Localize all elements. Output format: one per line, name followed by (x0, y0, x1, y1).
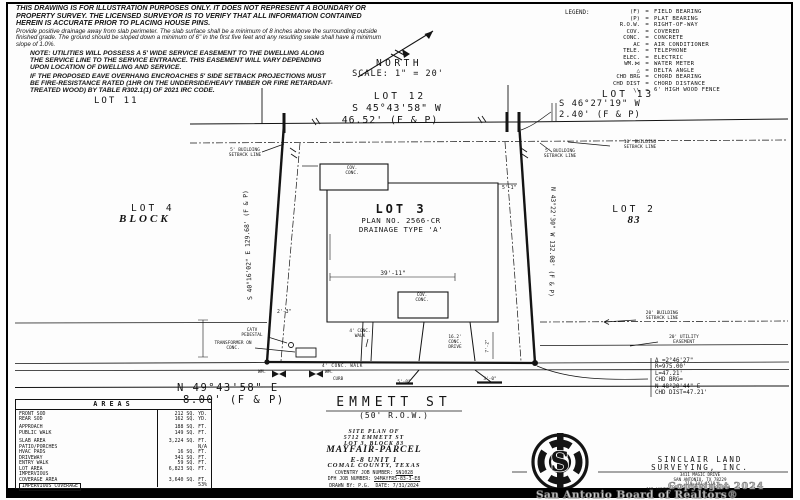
row-value: 149 SQ. FT. (175, 431, 207, 437)
transformer-label: TRANSFORMER ON CONC. (212, 342, 254, 352)
coventry-job-line: COVENTRY JOB NUMBER: SN1028 (335, 471, 413, 476)
date-value: 7/31/2024 (393, 484, 419, 489)
dim-5-0: 5'-0" (397, 381, 410, 386)
setback-right5-label: 5' BUILDING SETBACK LINE (542, 149, 578, 159)
row-label: REAR SOD (19, 417, 43, 423)
date-label: DATE: (375, 484, 389, 489)
dfh-job-line: DFH JOB NUMBER: 94MAYFR5-83-3-E8 (328, 477, 420, 482)
disclaimer-drainage: Provide positive drainage away from slab… (16, 29, 390, 49)
drawn-by-line: DRAWN BY: P.G. DATE: 7/31/2024 (329, 484, 419, 489)
dim-2-3: 2'-3" (277, 310, 291, 315)
dfh-job-label: DFH JOB NUMBER: (328, 477, 371, 482)
catv-pedestal-label: CATV PEDESTAL (238, 329, 266, 339)
table-row: REAR SOD162 SQ. YD. (16, 417, 211, 423)
areas-table: AREAS FRONT SOD212 SQ. YD. REAR SOD162 S… (15, 399, 212, 489)
areas-table-title: AREAS (16, 400, 211, 410)
disclaimer-eave-note: IF THE PROPOSED EAVE OVERHANG ENCROACHES… (30, 74, 336, 95)
curve-data-block: Δ =2°46'27" R=975.00' L=47.21' CHD BRG= … (655, 358, 707, 396)
water-meter-right-label: WM. (325, 371, 333, 376)
covered-concrete-front-label: COV. CONC. (343, 167, 361, 177)
disclaimer-utilities-note: NOTE: UTILITIES WILL POSSESS A 5' WIDE S… (30, 51, 336, 72)
lot3-plan-label: PLAN NO. 2566-CR (361, 217, 440, 225)
legend-title: LEGEND: (565, 10, 589, 16)
setback-left5-label: 5' BUILDING SETBACK LINE (227, 148, 263, 158)
north-label: NORTH (376, 59, 422, 69)
lot12-label: LOT 12 (374, 92, 426, 102)
scale-label: SCALE: 1" = 20' (352, 70, 444, 79)
block-word-label: BLOCK (119, 214, 171, 226)
row-value: 162 SQ. YD. (175, 417, 207, 423)
row-value: 53% (198, 483, 207, 489)
legend-item-fence: \\=6' HIGH WOOD FENCE (562, 88, 790, 100)
water-meter-left-label: WM. (258, 371, 266, 376)
dim-5-1: 5'-1" (502, 186, 516, 191)
coventry-job-label: COVENTRY JOB NUMBER: (335, 471, 393, 476)
legend-meaning: 6' HIGH WOOD FENCE (654, 88, 784, 100)
dim-3-0: 3'-0" (483, 378, 496, 383)
survey-sheet: S THIS DRAWING IS FOR ILLUSTRATION PURPO… (0, 0, 800, 500)
dim-39-11: 39'-11" (380, 271, 405, 277)
row-label: PUBLIC WALK (19, 431, 51, 437)
bearing-topright-dist: 2.40' (F & P) (559, 111, 641, 120)
watermark-board: San Antonio Board of Realtors® (536, 489, 738, 500)
street-name: EMMETT ST (336, 396, 451, 410)
surveyor-name-2: SURVEYING, INC. (651, 464, 749, 472)
coventry-job-value: SN1028 (396, 471, 413, 476)
table-row: PUBLIC WALK149 SQ. FT. (16, 431, 211, 437)
bearing-top: S 45°43'58" W (352, 104, 442, 114)
entry-walk-label: 4' CONC. WALK (347, 330, 374, 340)
concrete-drive-label: 16.2' CONC. DRIVE (446, 336, 464, 351)
block-number-label: 83 (628, 215, 641, 227)
bearing-top-dist: 46.52' (F & P) (342, 116, 439, 126)
setback-right10-label: 10' BUILDING SETBACK LINE (620, 140, 660, 150)
disclaimer-illustration: THIS DRAWING IS FOR ILLUSTRATION PURPOSE… (16, 5, 390, 28)
lot3-drainage-label: DRAINAGE TYPE 'A' (359, 226, 443, 234)
lot3-label: LOT 3 (375, 203, 426, 216)
titleblock-county: COMAL COUNTY, TEXAS (327, 463, 420, 470)
bearing-topright: S 46°27'19" W (559, 100, 641, 109)
curve-chord-distance: CHD DIST=47.21' (655, 390, 707, 396)
drawn-by-value: P.G. (358, 484, 370, 489)
bearing-east: N 43°22'30" W 132.08' (F & P) (547, 187, 556, 297)
table-row-impervious-coverage: IMPERVIOUS COVERAGE53% (16, 483, 211, 489)
disclaimer-block: THIS DRAWING IS FOR ILLUSTRATION PURPOSE… (16, 5, 390, 95)
legend: LEGEND: (F)=FIELD BEARING (P)=PLAT BEARI… (562, 9, 790, 100)
easement-util20-label: 20' UTILITY EASEMENT (667, 335, 701, 345)
dim-7-2: 7'-2" (487, 339, 492, 352)
drawn-by-label: DRAWN BY: (329, 484, 355, 489)
row-label: IMPERVIOUS COVERAGE (19, 483, 81, 491)
public-walk-label: 4' CONC. WALK (322, 365, 363, 370)
lot11-label: LOT 11 (94, 97, 139, 106)
setback-bldg20-label: 20' BUILDING SETBACK LINE (642, 311, 682, 321)
curb-label: CURB (333, 377, 343, 381)
street-row: (50' R.O.W.) (359, 412, 429, 420)
bearing-front: N 49°43'58" E (177, 383, 279, 394)
dfh-job-value: 94MAYFR5-83-3-E8 (374, 477, 420, 482)
covered-concrete-rear-label: COV. CONC. (413, 294, 431, 304)
